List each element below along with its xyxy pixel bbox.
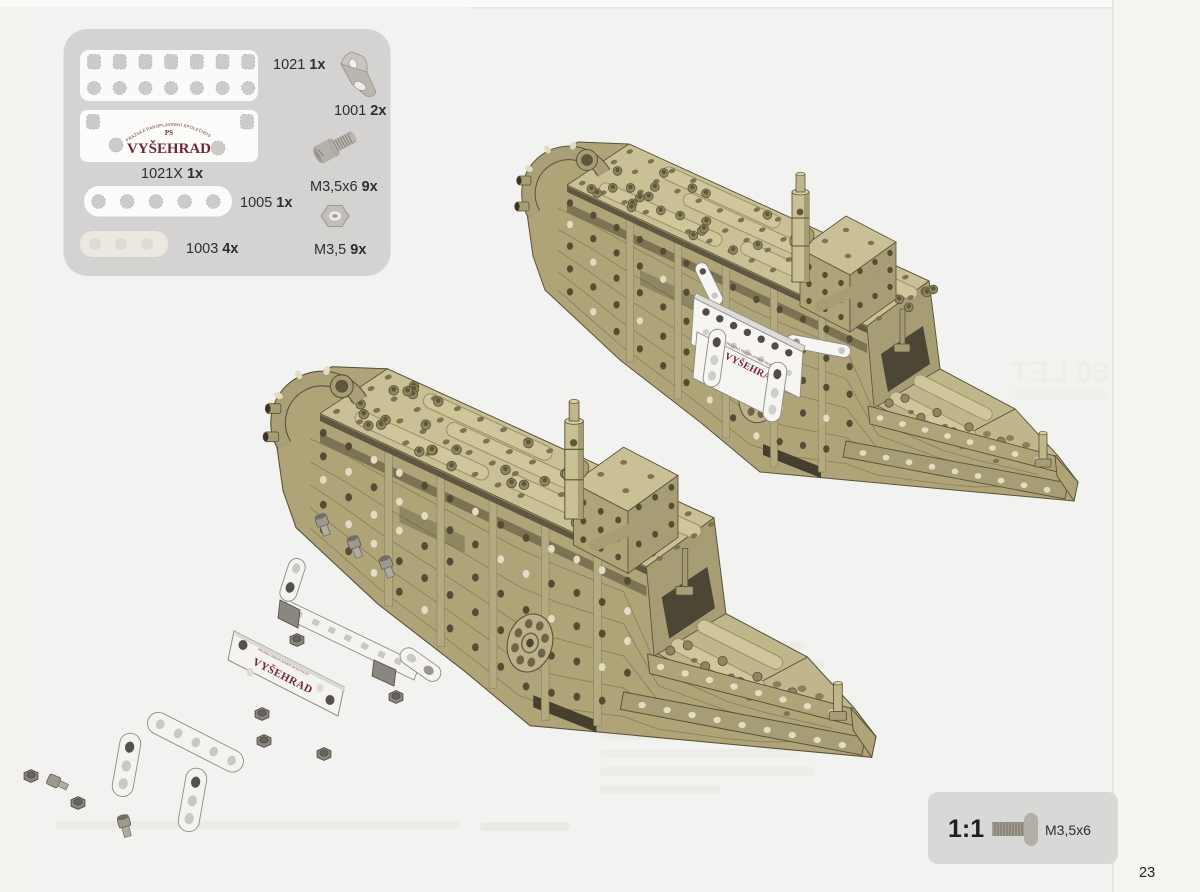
svg-text:60 LET: 60 LET [1011,356,1109,389]
svg-text:M3,5 9x: M3,5 9x [314,242,366,258]
svg-text:M3,5x6: M3,5x6 [1045,822,1091,838]
svg-text:PS: PS [165,129,173,137]
svg-text:1003 4x: 1003 4x [186,241,238,257]
svg-text:1005 1x: 1005 1x [240,195,292,211]
svg-text:1:1: 1:1 [948,815,984,843]
svg-text:1001 2x: 1001 2x [334,103,386,119]
svg-text:1021 1x: 1021 1x [273,57,325,73]
svg-text:1021X 1x: 1021X 1x [141,166,203,182]
svg-text:23: 23 [1139,865,1155,881]
svg-text:M3,5x6 9x: M3,5x6 9x [310,179,378,195]
svg-text:VYŠEHRAD: VYŠEHRAD [127,140,211,157]
